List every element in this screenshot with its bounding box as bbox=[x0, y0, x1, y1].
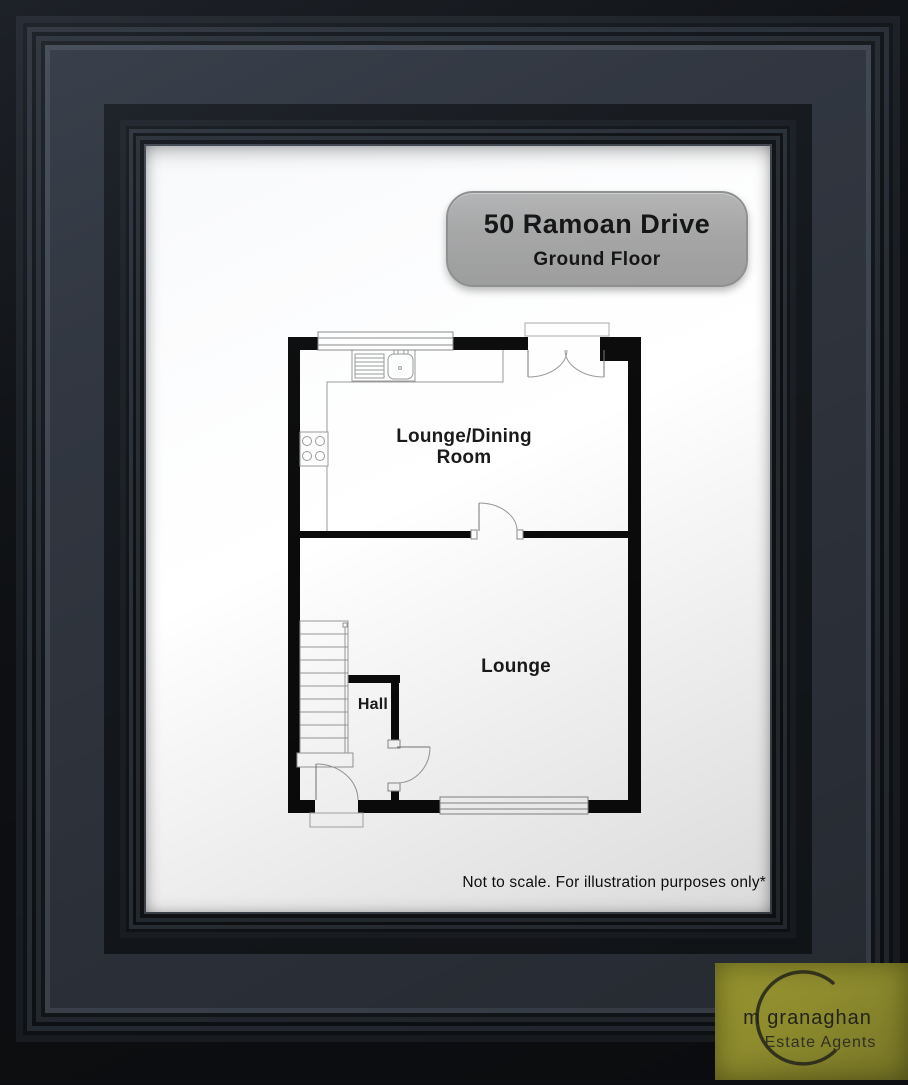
hall-door-icon bbox=[388, 740, 430, 791]
room-label-lounge: Lounge bbox=[451, 656, 581, 677]
floor-plan-linework bbox=[287, 322, 641, 834]
disclaimer-text: Not to scale. For illustration purposes … bbox=[462, 874, 766, 892]
sink-drainer bbox=[352, 350, 415, 381]
floor-plan: Lounge/Dining Room Lounge Hall bbox=[287, 322, 641, 834]
agency-logo: m granaghan Estate Agents bbox=[715, 963, 908, 1080]
title-badge: 50 Ramoan Drive Ground Floor bbox=[446, 191, 748, 287]
framed-floorplan-picture: { "badge": { "title": "50 Ramoan Drive",… bbox=[0, 0, 908, 1080]
floor-name: Ground Floor bbox=[448, 249, 746, 271]
room-label-hall: Hall bbox=[338, 694, 408, 715]
front-door-icon bbox=[310, 764, 363, 827]
logo-name: m granaghan bbox=[715, 1007, 900, 1030]
internal-door-icon bbox=[471, 503, 523, 539]
interior-wall bbox=[300, 531, 628, 538]
room-label-lounge-dining: Lounge/Dining Room bbox=[287, 426, 641, 468]
patio-double-doors-icon bbox=[525, 323, 609, 377]
top-window-icon bbox=[318, 332, 453, 350]
bottom-window-icon bbox=[440, 797, 588, 814]
logo-tagline: Estate Agents bbox=[733, 1034, 908, 1052]
property-address: 50 Ramoan Drive bbox=[448, 209, 746, 240]
